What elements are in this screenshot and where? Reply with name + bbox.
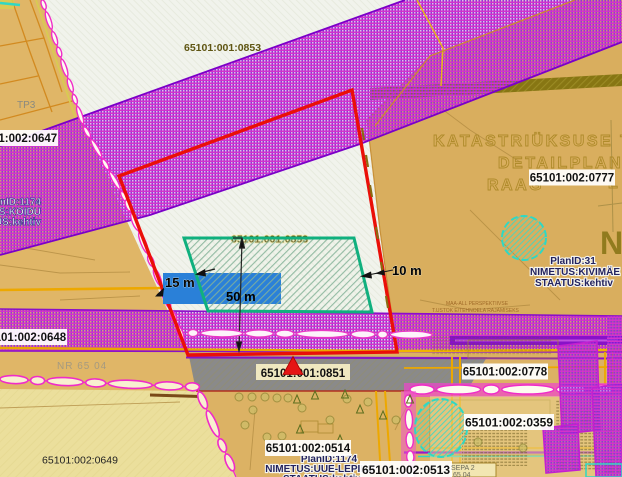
svg-text:N: N — [600, 225, 622, 261]
svg-text:65101:002:0777: 65101:002:0777 — [530, 173, 614, 185]
svg-text:10 m: 10 m — [392, 263, 422, 278]
svg-text:15 m: 15 m — [165, 275, 195, 290]
svg-text:STAATUS:kehtiv: STAATUS:kehtiv — [535, 278, 613, 289]
svg-text:65101:002:0514: 65101:002:0514 — [266, 443, 351, 455]
svg-text:65101:002:0778: 65101:002:0778 — [463, 367, 548, 379]
svg-text:TP3: TP3 — [17, 100, 36, 111]
svg-text:65101:002:0513: 65101:002:0513 — [362, 463, 450, 477]
svg-text:65101:001:0851: 65101:001:0851 — [261, 368, 346, 380]
svg-text:T.USTOK E/TEHNOELA RAJAMISEKS: T.USTOK E/TEHNOELA RAJAMISEKS — [432, 308, 520, 314]
svg-text:STAATUS:kehtiv: STAATUS:kehtiv — [0, 217, 41, 228]
svg-text:65101:002:0359: 65101:002:0359 — [465, 415, 553, 429]
svg-text:65101:002:0648: 65101:002:0648 — [0, 332, 67, 344]
svg-text:MAA-ALL PERSPEKTIIVSE: MAA-ALL PERSPEKTIIVSE — [446, 301, 509, 307]
svg-text:50 m: 50 m — [226, 289, 256, 304]
svg-text:KATASTRIÜKSUSE TUN: KATASTRIÜKSUSE TUN — [433, 131, 622, 150]
svg-text:65101:002:0649: 65101:002:0649 — [42, 455, 118, 467]
svg-text:PlanID:31: PlanID:31 — [550, 256, 596, 267]
svg-text:65101:001:0853: 65101:001:0853 — [184, 42, 261, 54]
svg-text:NIMETUS:KIVIMÄE: NIMETUS:KIVIMÄE — [530, 265, 620, 278]
svg-text:65101:002:0647: 65101:002:0647 — [0, 133, 57, 145]
svg-text:NR 65 04: NR 65 04 — [57, 361, 107, 372]
svg-text:SEPA 2: SEPA 2 — [451, 465, 475, 472]
svg-text:DETAILPLANEE: DETAILPLANEE — [498, 155, 622, 172]
svg-text:65 04: 65 04 — [453, 472, 471, 477]
